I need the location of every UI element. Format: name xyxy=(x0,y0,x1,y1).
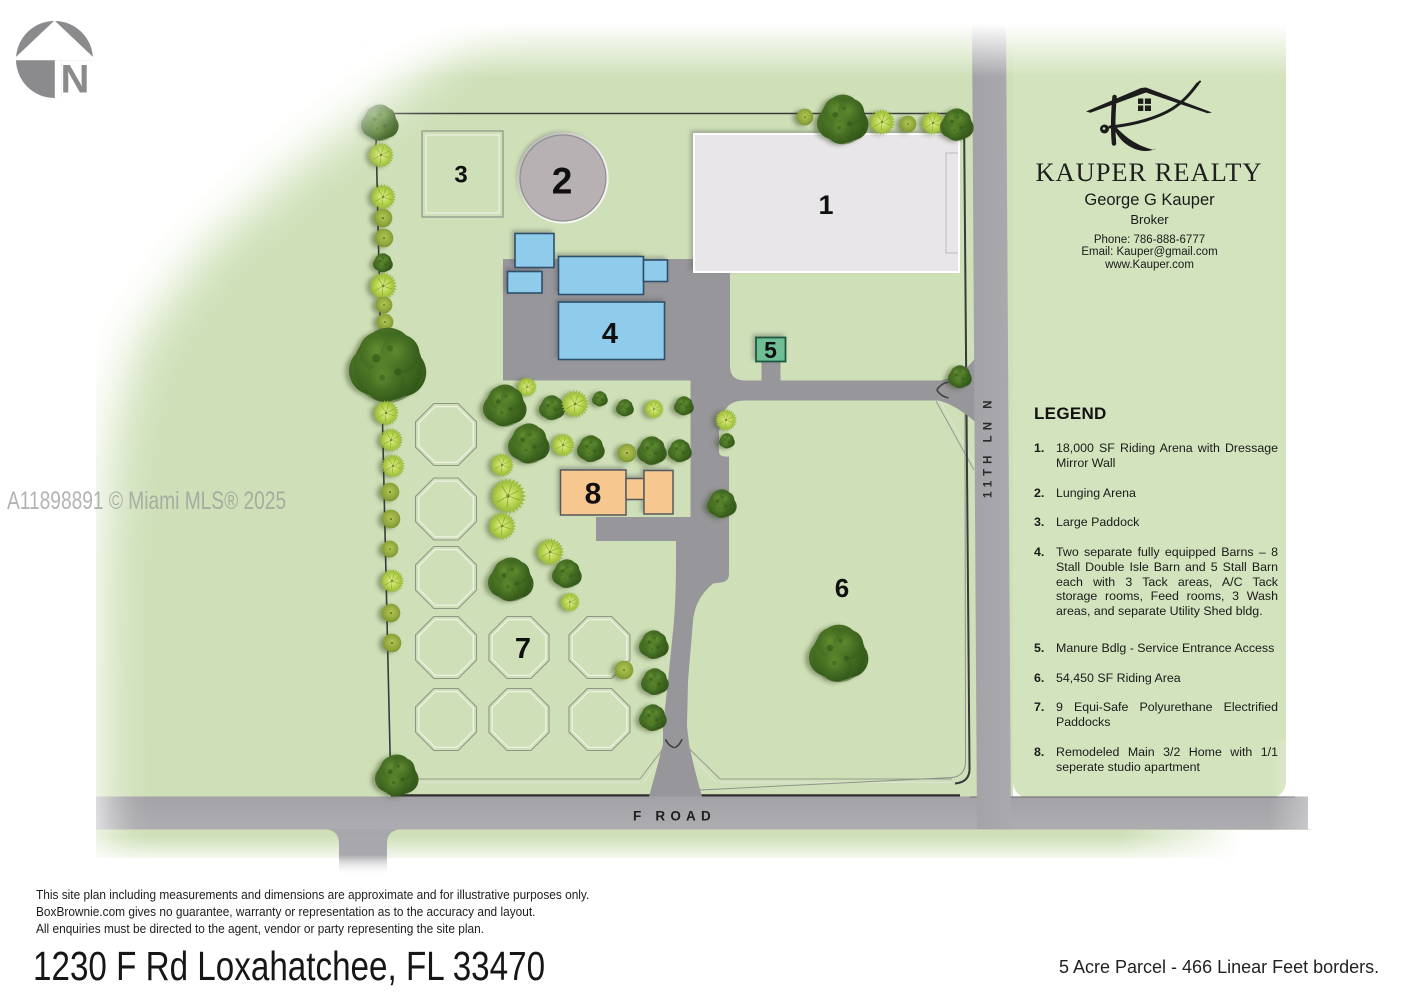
svg-text:2: 2 xyxy=(552,161,573,202)
svg-text:5: 5 xyxy=(764,337,777,363)
svg-text:4: 4 xyxy=(602,318,618,350)
svg-text:3: 3 xyxy=(454,162,467,189)
svg-text:1: 1 xyxy=(818,190,833,220)
svg-text:KAUPER REALTY: KAUPER REALTY xyxy=(1035,157,1262,187)
svg-text:7: 7 xyxy=(515,633,531,665)
svg-text:11TH LN N: 11TH LN N xyxy=(983,395,995,498)
svg-text:N: N xyxy=(61,58,90,102)
svg-text:8: 8 xyxy=(585,478,602,511)
svg-text:6: 6 xyxy=(835,573,849,603)
svg-text:F ROAD: F ROAD xyxy=(633,809,716,824)
